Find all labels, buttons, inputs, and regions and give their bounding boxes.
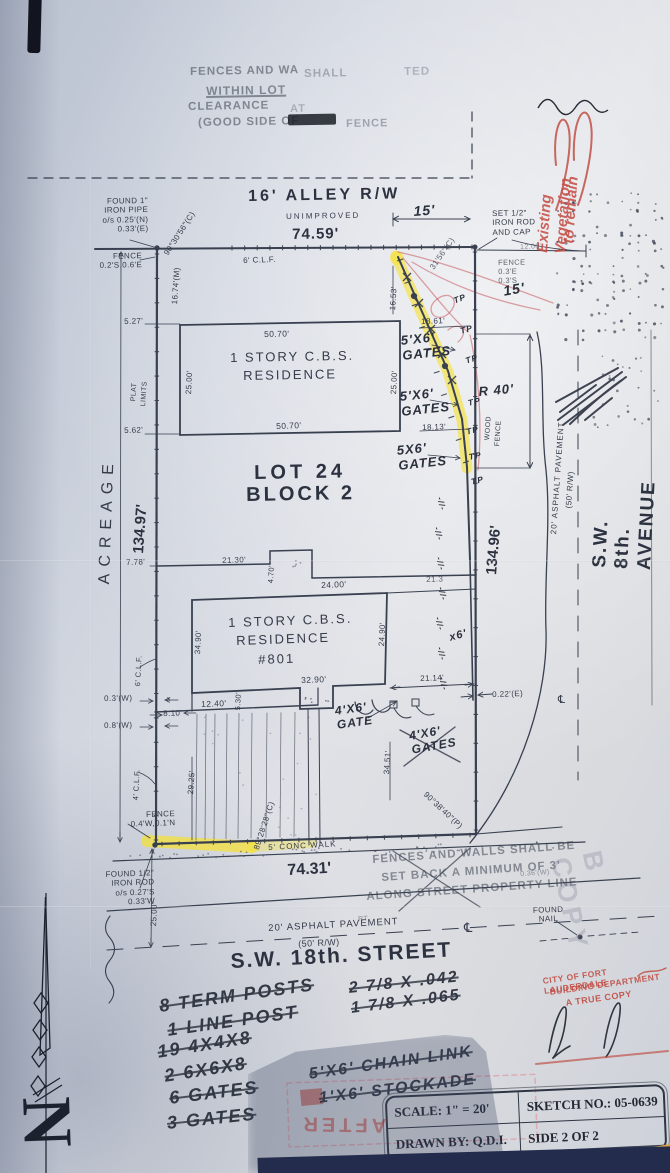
note-3-gates: 3 GATES bbox=[166, 1104, 257, 1134]
dim-13496: 134.96' bbox=[483, 525, 505, 576]
hand-15: 15' bbox=[502, 279, 526, 299]
angle-nw: 90°30'56"(C) bbox=[162, 210, 197, 257]
paper-crease-2 bbox=[0, 906, 670, 908]
block-title: BLOCK 2 bbox=[246, 482, 355, 507]
dim-1240: 12.40' bbox=[201, 698, 227, 709]
top-stamp-line4b: FENCE bbox=[346, 117, 389, 131]
avenue-rw: (50' R/W) bbox=[564, 471, 576, 509]
paper-crease-1 bbox=[0, 560, 670, 562]
top-stamp-line1c: TED bbox=[404, 66, 430, 80]
top-stamp-line1b: SHALL bbox=[304, 67, 348, 81]
top-stamp-line3: CLEARANCE bbox=[188, 100, 269, 115]
res1-dim-top: 50.70' bbox=[264, 329, 289, 339]
dim-1674: 16.74'(M) bbox=[170, 267, 182, 305]
gate-label-3: 5X6' GATES bbox=[396, 438, 448, 474]
label-layer: FENCES AND WASHALLTEDWITHIN LOTCLEARANCE… bbox=[0, 0, 670, 1173]
centerline-avenue: ℄ bbox=[558, 694, 565, 707]
alley-dim-7459: 74.59' bbox=[292, 225, 339, 244]
dim-810: 8.10' bbox=[163, 708, 182, 718]
north-letter: N bbox=[5, 1081, 88, 1164]
clf-4-left: 4' C.L.F. bbox=[132, 769, 142, 800]
tp-mark-g: TP bbox=[470, 474, 485, 487]
hash-mark-4: -//- bbox=[436, 586, 449, 602]
dim-022e: 0.22'(E) bbox=[492, 689, 523, 700]
dim-2400: 24.00' bbox=[321, 579, 347, 590]
street-pavement: 20' ASPHALT PAVEMENT bbox=[268, 916, 399, 934]
red-note-to-remain: to remain bbox=[560, 176, 582, 245]
dim-470: 4.70' bbox=[267, 565, 277, 583]
paper-crease-vertical bbox=[90, 170, 92, 970]
hash-mark-1: -//- bbox=[435, 496, 448, 512]
dim-213: 21.3 bbox=[426, 574, 443, 584]
tp-mark-b: TP bbox=[459, 323, 474, 336]
photo-edge-bar bbox=[27, 0, 41, 53]
clf-north: 6' C.L.F. bbox=[243, 255, 276, 266]
res2-name-2: RESIDENCE bbox=[236, 630, 330, 649]
avenue-pavement: 20' ASPHALT PAVEMENT bbox=[549, 421, 566, 534]
hash-mark-7: -//- bbox=[437, 676, 450, 692]
top-stamp-line4a: (GOOD SIDE OF bbox=[198, 115, 299, 130]
found-pipe-note: FOUND 1" IRON PIPE o/s 0.25'(N) 0.33'(E) bbox=[88, 196, 149, 235]
avenue-name: S.W. 8th. AVENUE bbox=[589, 477, 661, 570]
res1-dim-left: 25.00' bbox=[184, 370, 195, 394]
tp-mark-e: TP bbox=[465, 424, 480, 437]
alley-title: 16' ALLEY R/W bbox=[248, 185, 400, 207]
dim-3451: 34.51' bbox=[382, 750, 393, 775]
clf-6-left: 6' C.L.F. bbox=[134, 655, 144, 686]
dim-2925: 29.25' bbox=[186, 770, 197, 795]
res1-name-1: 1 STORY C.B.S. bbox=[230, 348, 354, 365]
scanned-survey-photo: FENCES AND WASHALLTEDWITHIN LOTCLEARANCE… bbox=[0, 0, 670, 1173]
hash-mark-3: -//- bbox=[434, 556, 447, 572]
dim-778: 7.78' bbox=[126, 557, 145, 567]
tp-mark-a: TP bbox=[452, 292, 468, 306]
centerline-street: ℄ bbox=[464, 920, 473, 935]
x-mark: x bbox=[167, 696, 171, 704]
angle-se: 90°38'40"(P) bbox=[422, 790, 465, 831]
street-name: S.W. 18th. STREET bbox=[230, 938, 453, 974]
res2-dim-bottom: 32.90' bbox=[301, 674, 327, 685]
alley-unimproved: UNIMPROVED bbox=[286, 211, 360, 222]
hash-mark-2: -//- bbox=[432, 526, 445, 542]
angle-ne: 31'56"(C) bbox=[428, 236, 457, 272]
fence-note-sw: FENCE 0.4'W,0.1'N bbox=[90, 809, 176, 831]
gate-label-1: 5'X6' GATES bbox=[400, 328, 452, 364]
dim-1813: 18.13' bbox=[422, 422, 446, 432]
res2-dim-left: 34.90' bbox=[193, 630, 204, 654]
res1-name-2: RESIDENCE bbox=[243, 366, 337, 383]
watermark-copy: B COPY bbox=[544, 848, 626, 956]
redaction-blob bbox=[288, 114, 336, 126]
found-rod-note: FOUND 1/2" IRON ROD o/s 0.27'S 0.33'W bbox=[76, 868, 155, 908]
tp-mark-c: TP bbox=[464, 352, 479, 366]
dim-7431: 74.31' bbox=[287, 860, 332, 881]
dim-1200: 12.00' bbox=[520, 243, 542, 252]
dim-527: 5.27' bbox=[124, 316, 143, 326]
limits-label: LIMITS bbox=[140, 381, 150, 406]
dim-1653: 16.53' bbox=[388, 286, 399, 311]
set-rod-note: SET 1/2" IRON ROD AND CAP bbox=[492, 208, 536, 237]
hash-mark-6: -//- bbox=[435, 646, 448, 662]
res2-name-1: 1 STORY C.B.S. bbox=[228, 611, 353, 631]
res2-number: #801 bbox=[258, 651, 295, 668]
dim-562: 5.62' bbox=[124, 425, 143, 435]
acreage-label: ACREAGE bbox=[96, 457, 119, 585]
dim-03w: 0.3'(W) bbox=[104, 694, 132, 704]
frag-rt: RT bbox=[358, 915, 368, 924]
dim-15-alley: 15' bbox=[413, 201, 436, 219]
gate-label-4: 4'X6' GATE bbox=[334, 699, 374, 732]
tp-mark-f: TP bbox=[468, 450, 482, 462]
hand-r40: R 40' bbox=[478, 381, 515, 399]
res1-dim-bottom: 50.70' bbox=[276, 420, 302, 431]
dim-530: 5.30' bbox=[234, 692, 244, 710]
dim-08w: 0.8'(W) bbox=[104, 721, 132, 731]
plat-label: PLAT bbox=[130, 382, 140, 401]
hash-mark-5: -//- bbox=[433, 616, 446, 632]
dim-13497: 134.97' bbox=[130, 504, 151, 555]
res2-dim-right: 24.90' bbox=[377, 622, 388, 646]
hand-x6: x6' bbox=[448, 627, 469, 644]
res1-dim-right: 25.00' bbox=[389, 370, 400, 394]
wood-fence-label-1: WOOD bbox=[484, 416, 494, 441]
gate-label-2: 5'X6' GATES bbox=[399, 384, 451, 420]
wood-fence-label-2: FENCE bbox=[494, 420, 504, 446]
gate-label-5: 4'X6' GATES bbox=[408, 721, 458, 757]
top-stamp-line2: WITHIN LOT bbox=[206, 83, 286, 99]
top-stamp-line1a: FENCES AND WA bbox=[190, 64, 299, 79]
dim-1861: 18.61' bbox=[421, 316, 445, 326]
tp-mark-d: TP bbox=[467, 395, 482, 407]
fence-note-nw: FENCE 0.2'S,0.6'E bbox=[94, 251, 142, 271]
conc-walk-label: 5' CONC WALK bbox=[268, 839, 337, 852]
